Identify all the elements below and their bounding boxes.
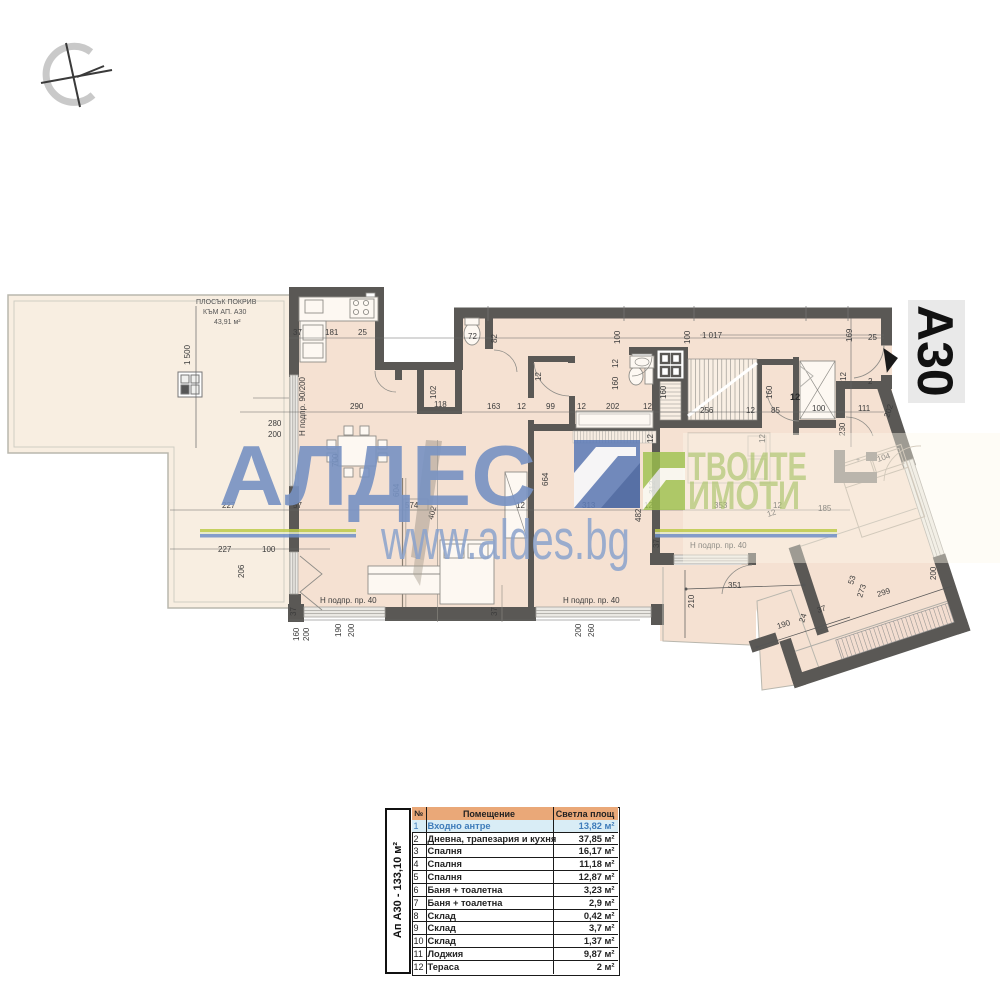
svg-text:12: 12 — [746, 406, 755, 415]
svg-text:Н подпр. 90/200: Н подпр. 90/200 — [298, 376, 307, 436]
svg-text:256: 256 — [700, 406, 714, 415]
svg-text:12: 12 — [646, 434, 655, 443]
svg-text:227: 227 — [218, 545, 232, 554]
svg-text:118: 118 — [434, 400, 447, 409]
svg-text:12: 12 — [790, 392, 800, 402]
svg-text:12: 12 — [643, 402, 652, 411]
svg-text:12: 12 — [839, 372, 848, 381]
svg-text:160: 160 — [292, 627, 301, 641]
svg-text:12: 12 — [534, 372, 543, 381]
svg-text:12: 12 — [517, 402, 526, 411]
svg-text:12: 12 — [577, 402, 586, 411]
svg-text:160: 160 — [659, 385, 668, 399]
svg-text:1 017: 1 017 — [702, 331, 723, 340]
svg-text:12: 12 — [611, 359, 620, 368]
svg-text:85: 85 — [771, 406, 780, 415]
svg-text:25: 25 — [358, 328, 367, 337]
svg-text:190: 190 — [334, 623, 343, 637]
svg-text:163: 163 — [487, 402, 501, 411]
svg-text:160: 160 — [765, 385, 774, 399]
svg-text:25: 25 — [868, 333, 877, 342]
svg-text:82: 82 — [490, 334, 499, 343]
svg-text:100: 100 — [812, 404, 826, 413]
svg-text:200: 200 — [929, 566, 938, 580]
svg-text:210: 210 — [687, 594, 696, 608]
svg-text:200: 200 — [347, 623, 356, 637]
svg-text:1 500: 1 500 — [183, 344, 192, 365]
svg-text:Н подпр. пр. 40: Н подпр. пр. 40 — [563, 596, 620, 605]
svg-text:37: 37 — [293, 328, 302, 337]
svg-text:100: 100 — [683, 330, 692, 344]
svg-text:43,91 м²: 43,91 м² — [214, 319, 241, 326]
svg-text:КЪМ АП. А30: КЪМ АП. А30 — [203, 309, 246, 316]
svg-text:ИМОТИ: ИМОТИ — [688, 474, 800, 518]
svg-text:280: 280 — [268, 419, 282, 428]
svg-text:351: 351 — [728, 581, 742, 590]
svg-text:102: 102 — [429, 385, 438, 399]
svg-text:100: 100 — [262, 545, 276, 554]
svg-text:99: 99 — [546, 402, 555, 411]
svg-text:290: 290 — [350, 402, 364, 411]
svg-text:181: 181 — [325, 328, 339, 337]
svg-text:664: 664 — [541, 472, 550, 486]
svg-text:200: 200 — [574, 623, 583, 637]
svg-text:260: 260 — [587, 623, 596, 637]
svg-text:200: 200 — [302, 627, 311, 641]
svg-text:100: 100 — [613, 330, 622, 344]
svg-text:www.aldes.bg: www.aldes.bg — [380, 508, 630, 572]
svg-text:111: 111 — [858, 404, 871, 413]
svg-text:206: 206 — [237, 564, 246, 578]
svg-text:72: 72 — [468, 332, 477, 341]
svg-text:2: 2 — [868, 377, 873, 386]
svg-text:202: 202 — [606, 402, 620, 411]
svg-text:Н подпр. пр. 40: Н подпр. пр. 40 — [320, 596, 377, 605]
svg-text:ПЛОСЪК ПОКРИВ: ПЛОСЪК ПОКРИВ — [196, 299, 257, 306]
svg-text:37: 37 — [289, 607, 298, 616]
svg-text:37: 37 — [490, 607, 499, 616]
svg-text:37: 37 — [652, 539, 661, 548]
svg-text:482: 482 — [634, 508, 643, 522]
svg-text:А30: А30 — [907, 305, 963, 397]
svg-text:160: 160 — [611, 376, 620, 390]
